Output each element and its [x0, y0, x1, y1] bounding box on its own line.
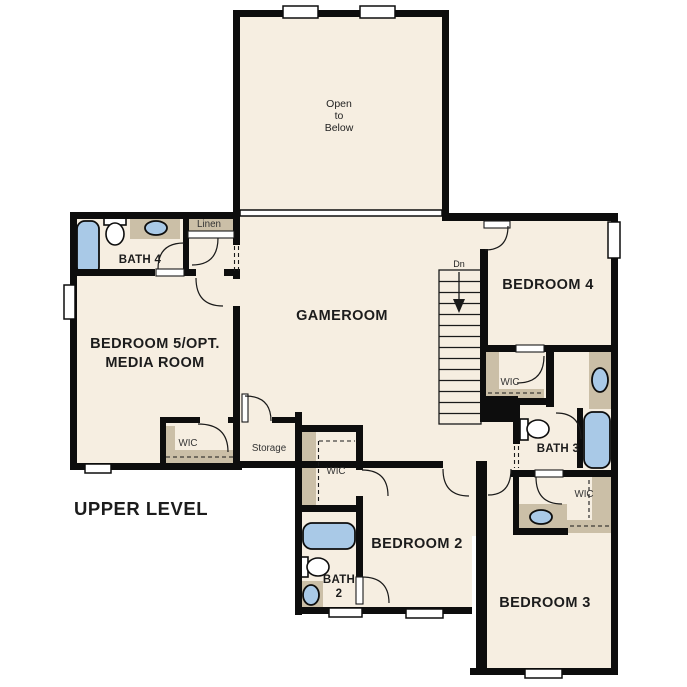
railing-open-to-below [240, 210, 442, 216]
sink-bath3 [592, 368, 608, 392]
door-leaf [356, 577, 363, 604]
wall-segment [70, 269, 155, 276]
bathtub-bath3 [584, 412, 610, 468]
wall-segment [233, 10, 449, 17]
door-leaf [156, 269, 184, 276]
wall-segment [442, 10, 449, 213]
window [608, 222, 620, 258]
door-leaf [188, 231, 234, 238]
wall-segment [297, 425, 363, 432]
floor-plan-drawing: Open to Below GAMEROOM BEDROOM 4 BEDROOM… [0, 0, 687, 687]
sink-hall3 [530, 510, 552, 524]
wall-segment [160, 417, 200, 423]
stairs-dn-label: Dn [453, 259, 465, 269]
wall-segment [480, 249, 488, 352]
bathtub-bath4 [77, 221, 99, 275]
sink-bath4 [145, 221, 167, 235]
wall-segment [513, 528, 568, 535]
wall-segment [480, 345, 516, 352]
bedroom2-label: BEDROOM 2 [371, 536, 462, 552]
wall-segment [295, 505, 363, 512]
wall-segment [302, 461, 443, 468]
wall-segment [513, 398, 520, 444]
wall-segment [544, 345, 618, 352]
bath2-label-line1: BATH [323, 574, 355, 586]
wall-segment [189, 269, 196, 276]
open-to-below-label-line1: Open [326, 98, 352, 110]
wic3-label: WIC [574, 489, 593, 500]
wall-segment [577, 408, 583, 468]
wall-segment [295, 425, 302, 615]
wall-segment [476, 461, 487, 675]
door-leaf [484, 221, 510, 228]
wic3-shelf-right [592, 477, 611, 525]
wall-segment [233, 10, 240, 212]
wic2-shelf-left [300, 432, 316, 506]
bedroom4-label: BEDROOM 4 [502, 277, 593, 293]
window [360, 6, 395, 18]
sink-bath2 [303, 585, 319, 605]
window [283, 6, 318, 18]
floor-plan: Open to Below GAMEROOM BEDROOM 4 BEDROOM… [0, 0, 687, 687]
plan-title: UPPER LEVEL [74, 498, 208, 519]
wall-segment [70, 212, 240, 219]
open-to-below-label-line3: Below [325, 122, 354, 134]
gameroom-label: GAMEROOM [296, 308, 388, 324]
window [85, 464, 111, 473]
wall-segment [228, 417, 240, 423]
open-to-below-label-line2: to [335, 110, 344, 122]
wall-segment [356, 508, 363, 577]
door-leaf [535, 470, 563, 477]
wall-segment [224, 269, 240, 276]
bath3-label: BATH 3 [537, 443, 579, 455]
toilet-bowl-bath4 [106, 223, 124, 245]
door-leaf [516, 345, 544, 352]
bath4-label: BATH 4 [119, 254, 162, 266]
wall-segment [160, 417, 166, 467]
wall-segment [295, 607, 472, 614]
wall-segment [511, 470, 536, 477]
door-leaf [242, 394, 248, 422]
linen-label: Linen [197, 219, 221, 230]
wall-segment [546, 345, 554, 407]
wall-segment [233, 306, 240, 467]
bedroom3-label: BEDROOM 3 [499, 595, 590, 611]
wall-segment [70, 212, 77, 470]
window [406, 609, 443, 618]
window [64, 285, 75, 319]
bathtub-bath2 [303, 523, 355, 549]
wall-segment [442, 213, 618, 221]
wall-segment [233, 212, 240, 245]
storage-label: Storage [252, 443, 287, 454]
toilet-bowl-bath3 [527, 420, 549, 438]
bedroom5-label-line1: BEDROOM 5/OPT. [90, 336, 220, 352]
bath2-label-line2: 2 [336, 588, 343, 600]
bedroom5-label-line2: MEDIA ROOM [105, 355, 204, 371]
wall-segment [240, 461, 303, 468]
wall-segment [183, 212, 189, 276]
window [525, 669, 562, 678]
wic2-label: WIC [326, 466, 345, 477]
wall-segment [562, 470, 612, 477]
window [329, 608, 362, 617]
wic5-label: WIC [178, 438, 197, 449]
wic4-label: WIC [500, 377, 519, 388]
wall-segment [513, 470, 519, 532]
wall-segment [611, 213, 618, 675]
